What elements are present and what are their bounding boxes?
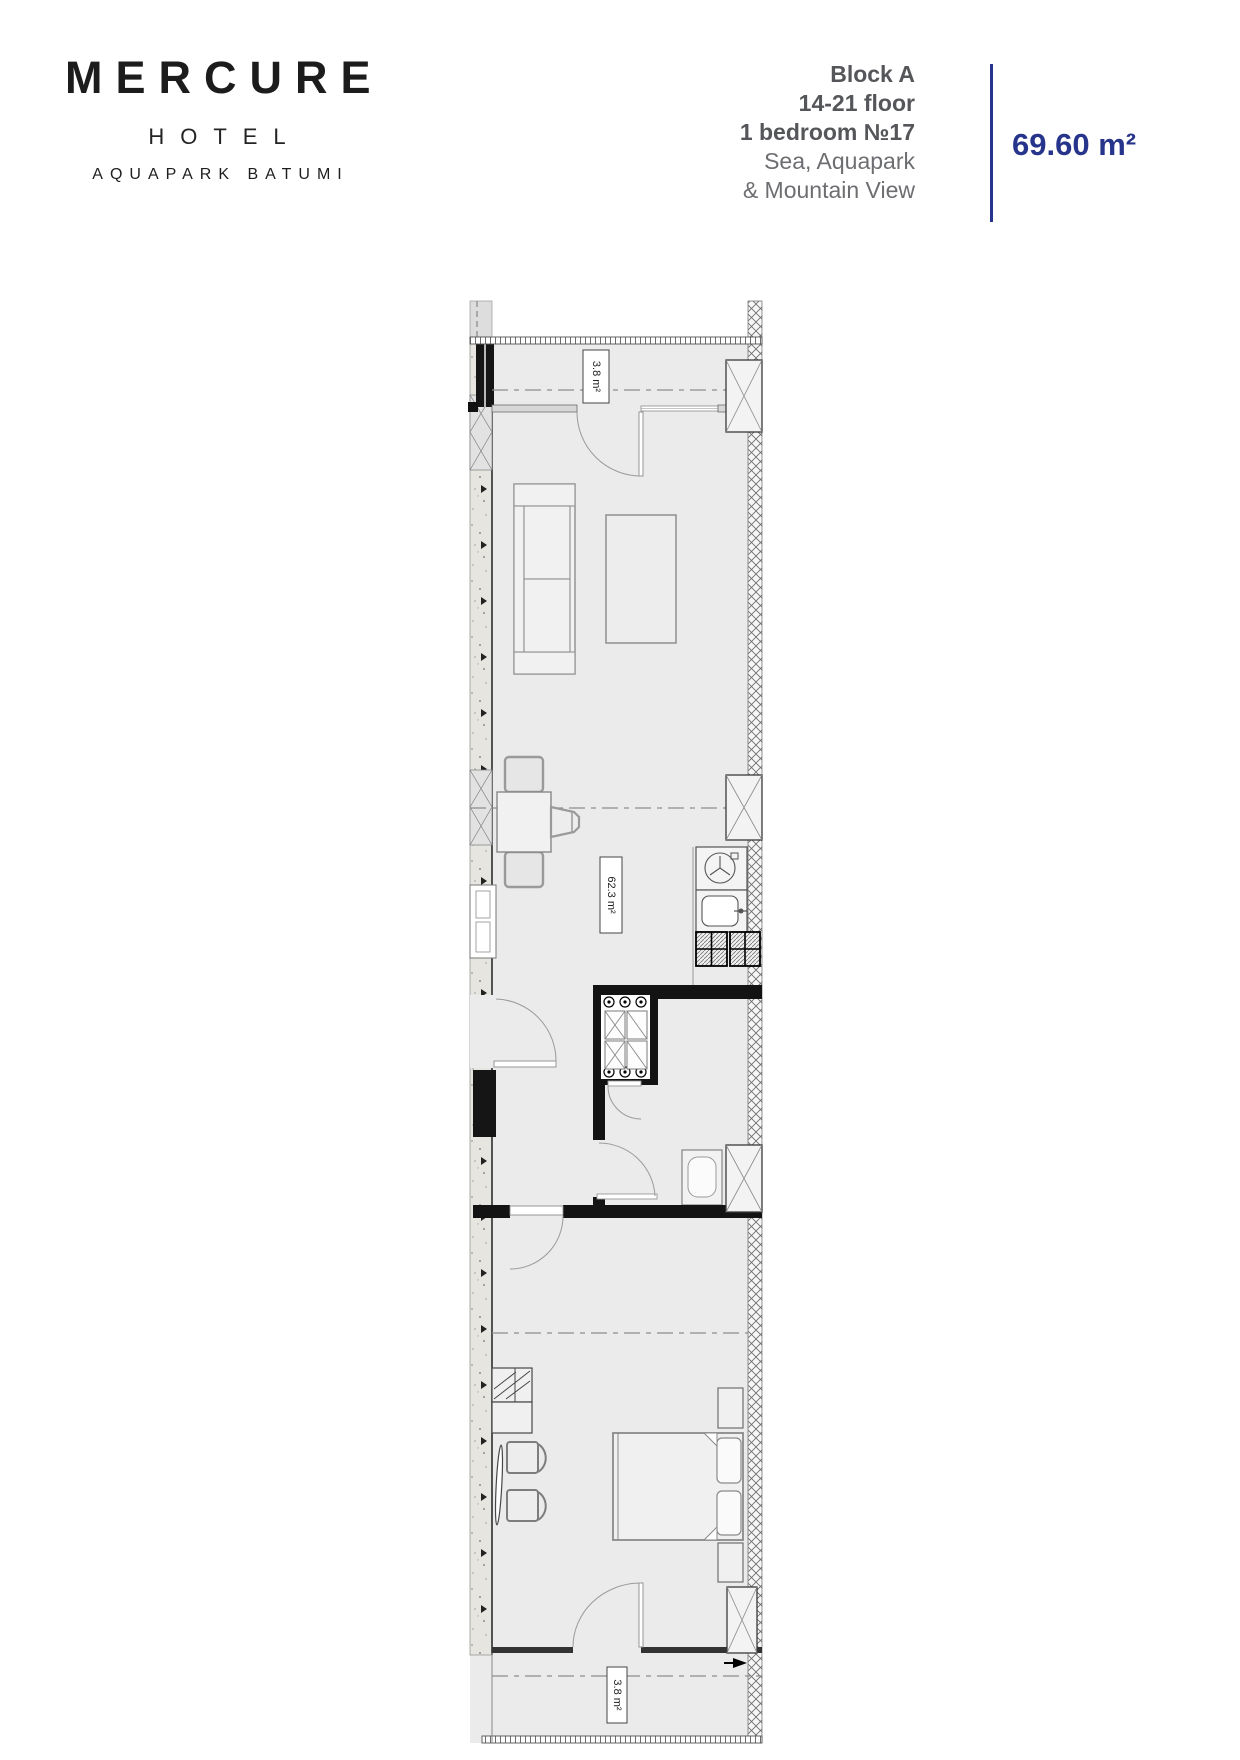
unit-view-line1: Sea, Aquapark (740, 147, 915, 176)
kitchen-sink (696, 890, 747, 932)
unit-view-line2: & Mountain View (740, 176, 915, 205)
structural-column-4 (727, 1587, 757, 1653)
structural-column-1 (726, 360, 762, 432)
pillow-2 (717, 1491, 741, 1535)
living-area-label: 62.3 m² (600, 857, 622, 933)
structural-column-3 (726, 1145, 762, 1212)
dining-chair-bottom (505, 852, 543, 887)
brand-logo: MERCURE HOTEL AQUAPARK BATUMI (52, 52, 382, 184)
dining-chair-top (505, 757, 543, 792)
utility-shaft (593, 985, 658, 1085)
washing-machine (696, 847, 747, 890)
svg-text:3.8 m²: 3.8 m² (611, 1679, 623, 1711)
left-wall-window (470, 885, 496, 958)
svg-text:3.8 m²: 3.8 m² (590, 361, 602, 393)
bottom-balcony-railing (482, 1736, 762, 1743)
brand-type: HOTEL (52, 124, 382, 150)
brand-name: MERCURE (52, 52, 382, 104)
unit-info: Block A 14-21 floor 1 bedroom №17 Sea, A… (740, 60, 915, 205)
top-balcony-railing (470, 337, 762, 344)
svg-text:62.3 m²: 62.3 m² (605, 876, 617, 914)
dining-table (497, 792, 551, 852)
total-area-value: 69.60 m² (1012, 127, 1136, 163)
left-exterior-wall (468, 301, 496, 1655)
floor-plan: 3.8 m² 62.3 m² 3.8 m² (468, 295, 768, 1755)
balcony-top-area-label: 3.8 m² (583, 350, 609, 403)
left-wall-segment (473, 1070, 496, 1137)
unit-bedroom: 1 bedroom №17 (740, 118, 915, 147)
unit-floor-range: 14-21 floor (740, 89, 915, 118)
bathroom-vanity (682, 1150, 722, 1205)
coffee-table (606, 515, 676, 643)
bed (613, 1433, 743, 1540)
sofa (514, 484, 575, 674)
structural-column-2 (726, 775, 762, 840)
nightstand-2 (718, 1543, 743, 1582)
right-exterior-wall (748, 301, 762, 1743)
nightstand-1 (718, 1388, 743, 1428)
header-divider-line (990, 64, 993, 222)
floor-plan-svg: 3.8 m² 62.3 m² 3.8 m² (468, 295, 768, 1755)
desk (492, 1368, 532, 1433)
balcony-bottom-area-label: 3.8 m² (607, 1667, 627, 1723)
baby-chair (551, 807, 579, 837)
brand-location: AQUAPARK BATUMI (52, 166, 382, 184)
pillow-1 (717, 1438, 741, 1483)
unit-block: Block A (740, 60, 915, 89)
